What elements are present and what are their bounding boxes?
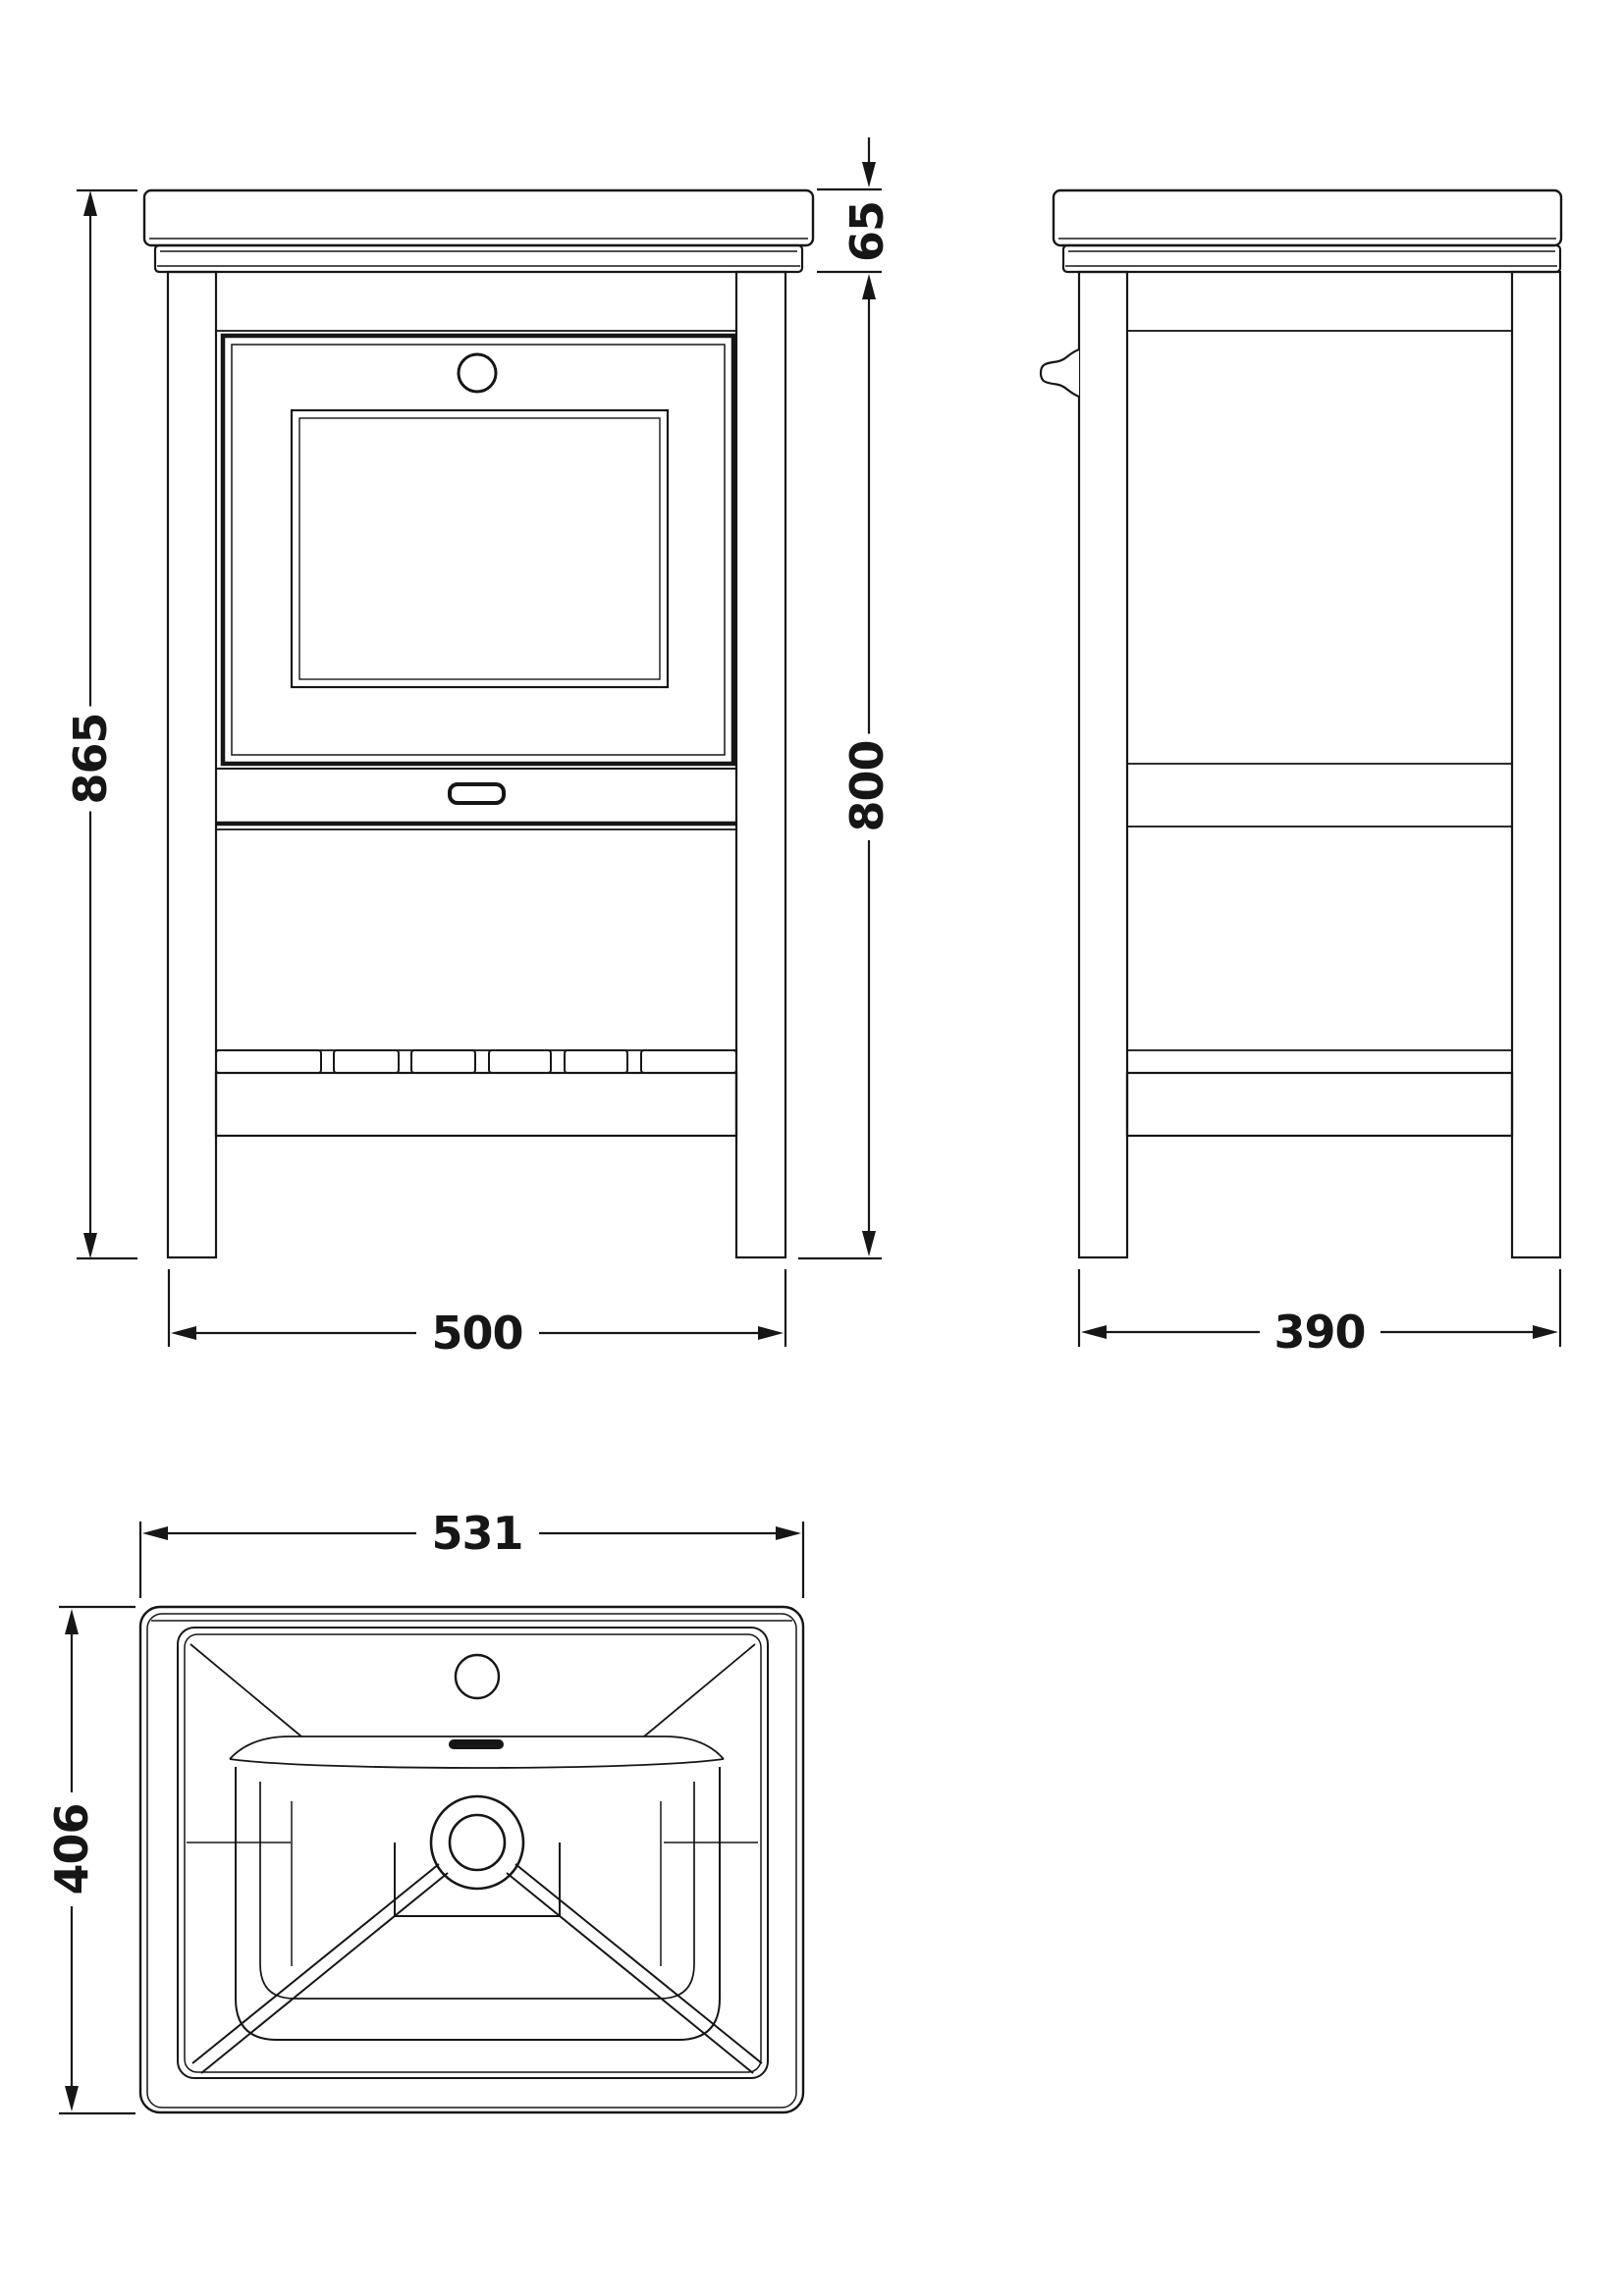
- side-top-rail: [1127, 272, 1512, 331]
- front-shelf-slats: [216, 1050, 736, 1073]
- front-lower-panel: [216, 829, 736, 1050]
- dimension-label-basin-depth: 406: [47, 1796, 96, 1901]
- bowl-slope-ridges: [192, 1864, 762, 2073]
- side-front-leg: [1079, 272, 1127, 1257]
- front-drawer: [216, 769, 736, 825]
- front-bottom-rail: [216, 1073, 736, 1136]
- front-worktop: [144, 190, 813, 272]
- front-view: [144, 190, 813, 1257]
- side-rear-leg: [1512, 272, 1560, 1257]
- basin-outer-edge: [140, 1607, 803, 2112]
- dimension-label-overall-width: 500: [424, 1308, 529, 1358]
- side-shelf-edge: [1127, 1050, 1512, 1073]
- dimension-label-cabinet-height: 800: [842, 733, 892, 838]
- drawer-handle-recess: [450, 784, 504, 803]
- technical-drawing-vanity-unit: 865 65 800 500 390 531 406: [0, 0, 1623, 2296]
- drain-inner: [450, 1815, 505, 1870]
- side-worktop: [1054, 190, 1561, 272]
- front-top-rail: [216, 272, 736, 331]
- tap-hole: [456, 1655, 499, 1698]
- side-bottom-rail: [1127, 1073, 1512, 1136]
- front-door: [223, 336, 733, 764]
- basin-rim: [178, 1628, 768, 2078]
- dimension-label-basin-width: 531: [424, 1509, 529, 1558]
- front-right-leg: [736, 272, 785, 1257]
- front-left-leg: [168, 272, 216, 1257]
- overflow-slot: [449, 1739, 504, 1749]
- side-door-knob: [1041, 349, 1079, 397]
- dimension-label-overall-height: 865: [66, 706, 115, 811]
- side-mid-rail: [1127, 764, 1512, 827]
- dimension-label-depth: 390: [1267, 1308, 1372, 1357]
- drawing-lineart: [0, 0, 1623, 2296]
- side-view: [1041, 190, 1561, 1257]
- dimension-label-worktop-height: 65: [842, 194, 892, 269]
- plan-view: [140, 1607, 803, 2112]
- door-knob: [459, 354, 496, 392]
